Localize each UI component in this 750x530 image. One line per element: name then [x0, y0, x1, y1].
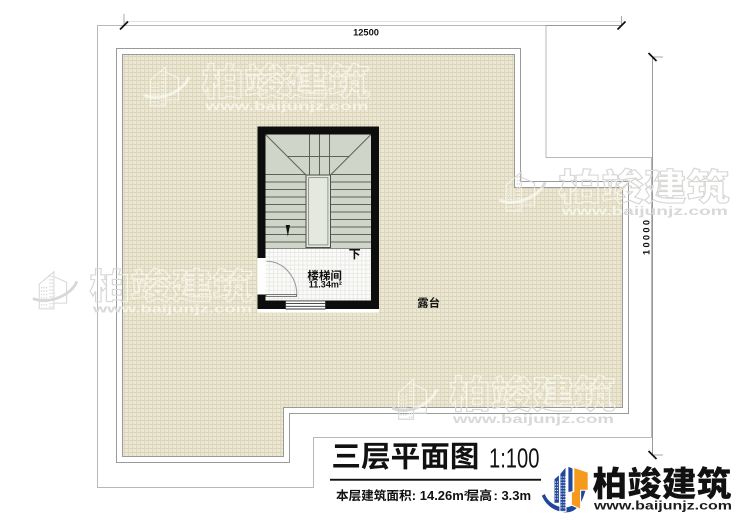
svg-text:1:100: 1:100: [489, 443, 539, 474]
svg-text:www.baijunjz.com: www.baijunjz.com: [204, 99, 369, 113]
svg-text:www.baijunjz.com: www.baijunjz.com: [593, 498, 732, 512]
svg-text:12500: 12500: [353, 28, 379, 38]
svg-text:www.baijunjz.com: www.baijunjz.com: [451, 412, 614, 426]
svg-text:11.34m²: 11.34m²: [309, 280, 342, 290]
svg-text:: 14.26m²: : 14.26m²: [412, 488, 469, 503]
svg-text:: 3.3m: : 3.3m: [494, 488, 532, 503]
